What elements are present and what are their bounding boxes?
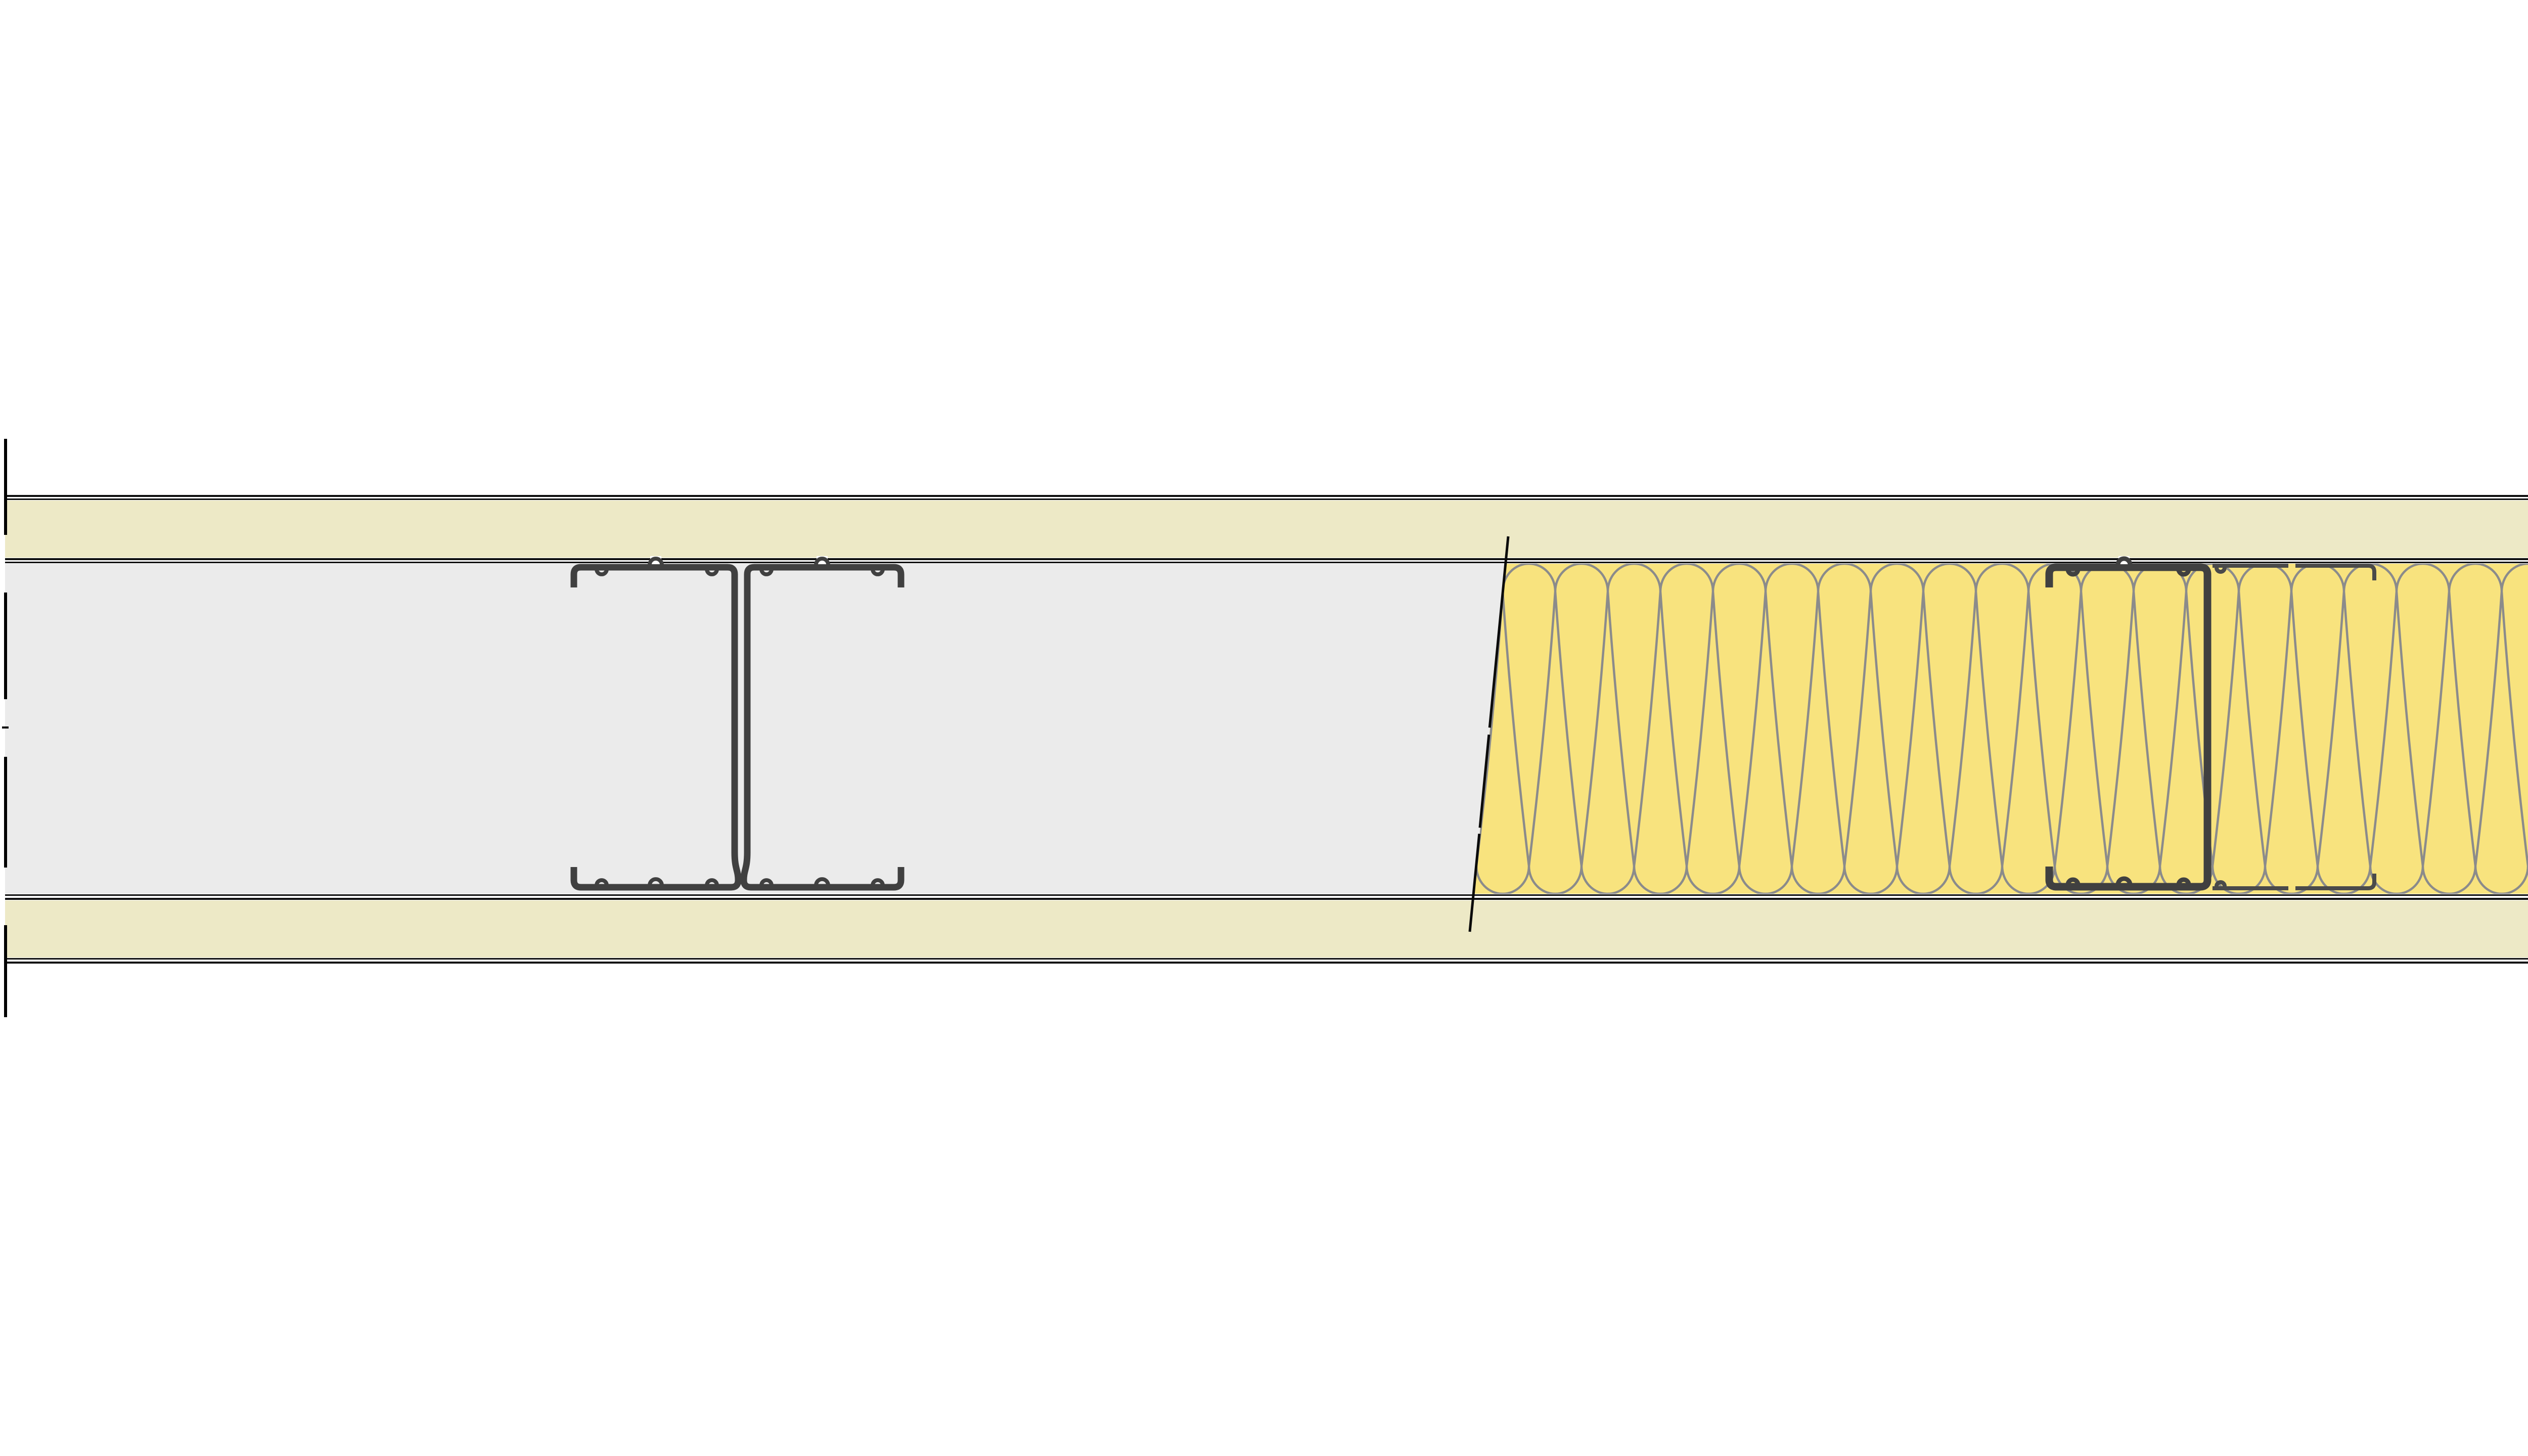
insulation-layer	[1397, 564, 2528, 894]
board-edge-line-1	[5, 498, 2528, 500]
board-edge-line-7	[5, 962, 2528, 964]
cut-line-left-0	[4, 439, 7, 535]
plasterboard-bottom	[5, 900, 2528, 958]
cut-line-left-2	[4, 757, 7, 868]
board-edge-line-6	[5, 958, 2528, 960]
board-edge-line-2	[5, 558, 2528, 560]
plasterboard-top	[5, 500, 2528, 558]
wall-section-drawing	[0, 0, 2528, 1456]
drawing-page	[0, 0, 2528, 1456]
cut-line-left-1	[4, 593, 7, 699]
board-edge-line-3	[5, 562, 2528, 563]
board-edge-line-4	[5, 894, 2528, 896]
board-edge-line-0	[5, 495, 2528, 497]
cut-line-left-3	[4, 925, 7, 1017]
cut-line-tick-left	[2, 726, 9, 729]
board-edge-line-5	[5, 898, 2528, 900]
